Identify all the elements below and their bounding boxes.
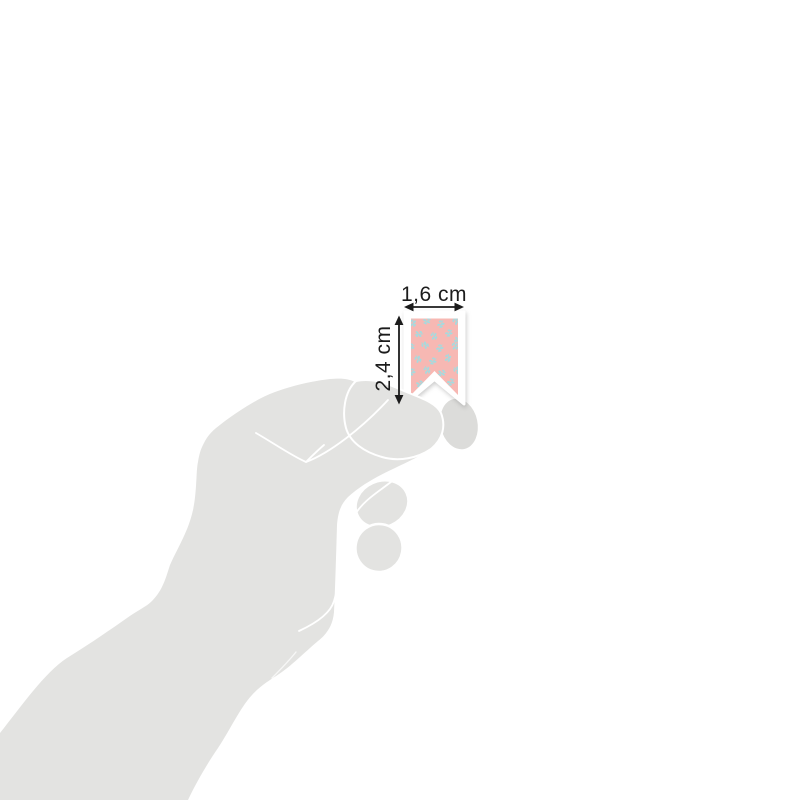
curled-finger-knuckle-lower xyxy=(352,520,407,575)
width-dimension: 1,6 cm xyxy=(401,283,467,311)
height-label: 2,4 cm xyxy=(372,325,395,391)
height-arrowhead-top-icon xyxy=(395,316,404,326)
scene: 1,6 cm 2,4 cm xyxy=(0,0,800,800)
width-label: 1,6 cm xyxy=(401,283,467,306)
product-dimension-illustration: 1,6 cm 2,4 cm xyxy=(0,0,800,800)
height-dimension: 2,4 cm xyxy=(372,316,403,405)
pennant-sticker xyxy=(405,312,464,404)
